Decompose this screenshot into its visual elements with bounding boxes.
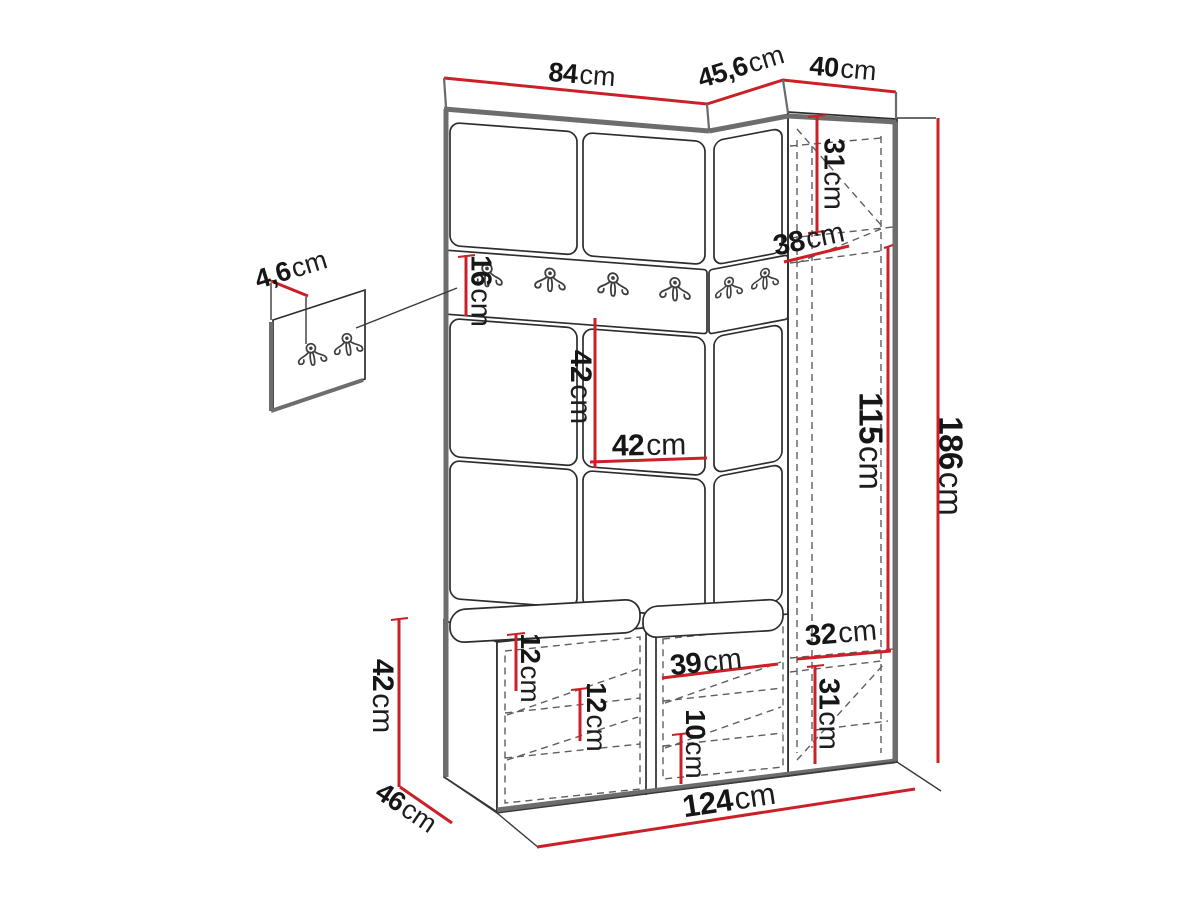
dim-value: 38 (770, 225, 807, 263)
dim-unit: cm (702, 643, 744, 679)
dim-unit: cm (732, 776, 778, 817)
wall-panel (714, 128, 782, 265)
dim-value: 32 (804, 618, 838, 653)
dim-value: 84 (547, 57, 578, 89)
detail-pointer-line (356, 288, 457, 328)
dim-value: 42 (612, 429, 645, 463)
dim-label-39cm: 39cm (669, 645, 744, 681)
wall-hook-panel-detail (271, 283, 457, 411)
wall-panel (450, 460, 577, 608)
dim-unit: cm (646, 428, 687, 462)
dim-value: 31 (818, 138, 850, 169)
diagram-drawing (0, 0, 1200, 899)
dim-label-42cm-bench: 42cm (367, 659, 397, 733)
dim-unit: cm (839, 53, 877, 86)
dim-label-42cm-panel-width: 42cm (612, 430, 687, 461)
dim-value: 10 (680, 709, 711, 739)
dim-unit: cm (366, 693, 399, 733)
furniture-dimension-diagram: 84cm 45,6cm 40cm 31cm 38cm 16cm 4,6cm 42… (0, 0, 1200, 899)
dim-value: 39 (669, 647, 703, 682)
dim-unit: cm (515, 665, 546, 702)
dim-unit: cm (564, 384, 597, 424)
dim-label-84cm: 84cm (548, 59, 617, 91)
dim-value: 16 (465, 255, 497, 286)
dim-tick (707, 104, 709, 129)
dim-value: 115 (853, 392, 890, 444)
wall-panel (583, 132, 705, 264)
dim-label-12cm-inner: 12cm (582, 682, 610, 751)
dim-value: 42 (564, 350, 597, 382)
dim-label-12cm-top: 12cm (516, 633, 544, 702)
dim-value: 12 (515, 633, 546, 663)
dim-label-32cm: 32cm (804, 616, 878, 651)
dim-label-115cm: 115cm (855, 392, 888, 490)
dim-unit: cm (465, 288, 497, 327)
dim-label-16cm: 16cm (466, 255, 495, 327)
dim-unit: cm (837, 614, 878, 649)
dim-tick (444, 78, 446, 107)
dim-label-40cm: 40cm (808, 53, 877, 86)
dim-unit: cm (581, 714, 612, 751)
dim-value: 42 (366, 659, 399, 691)
dim-value: 186 (933, 416, 970, 470)
dim-label-186cm: 186cm (935, 416, 968, 516)
extension-line (897, 762, 941, 791)
dim-unit: cm (933, 472, 970, 516)
dim-unit: cm (818, 171, 850, 210)
dim-unit: cm (578, 59, 616, 92)
dim-value: 124 (680, 782, 735, 824)
wall-panel (450, 122, 577, 255)
dim-value: 40 (808, 51, 840, 83)
wall-panel (583, 470, 705, 617)
wall-panel (450, 318, 577, 466)
dim-label-31cm-bottom: 31cm (814, 678, 843, 750)
dim-label-31cm-top: 31cm (819, 138, 848, 210)
panel-wall-corner-face (709, 127, 788, 614)
extension-line (497, 813, 539, 848)
dim-unit: cm (853, 446, 890, 490)
dim-tick (783, 80, 788, 113)
dim-unit: cm (680, 741, 711, 778)
wall-panel (714, 324, 782, 473)
wall-panel (714, 464, 782, 613)
dim-unit: cm (813, 711, 845, 750)
dim-value: 12 (581, 682, 612, 712)
dim-label-10cm: 10cm (681, 709, 709, 778)
dim-tick-red (391, 618, 408, 620)
dim-value: 31 (813, 678, 845, 709)
top-edge-corner (709, 116, 788, 131)
dim-label-42cm-panel-height: 42cm (565, 350, 595, 424)
